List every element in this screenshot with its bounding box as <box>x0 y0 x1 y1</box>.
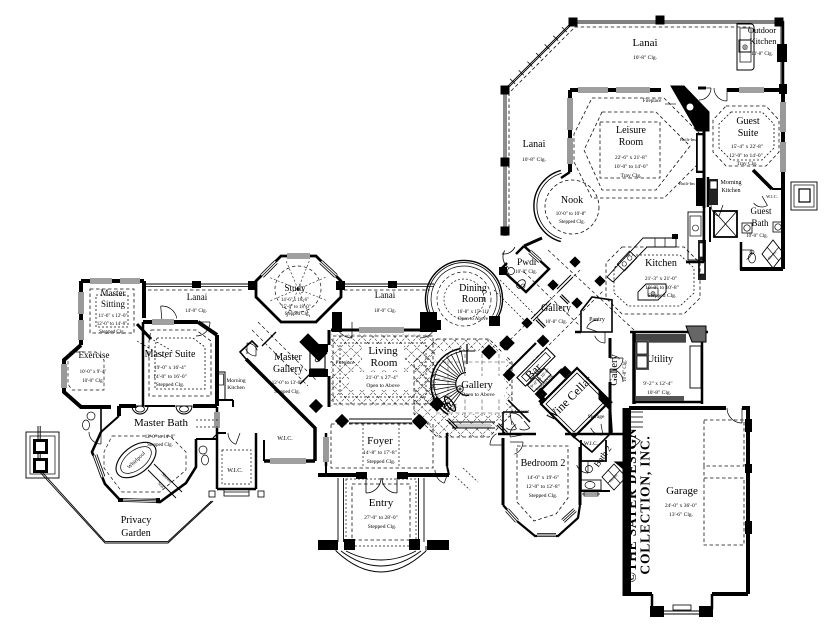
svg-text:Kitchen: Kitchen <box>227 385 245 391</box>
svg-text:Kitchen: Kitchen <box>722 188 741 194</box>
svg-text:Tray Clg.: Tray Clg. <box>621 173 643 179</box>
svg-text:10'-8" Clg.: 10'-8" Clg. <box>545 320 567 325</box>
svg-text:24'-0" x 36'-0": 24'-0" x 36'-0" <box>665 503 697 509</box>
svg-text:Outdoor: Outdoor <box>748 25 777 35</box>
svg-text:Room: Room <box>619 137 644 148</box>
svg-text:Lanai: Lanai <box>375 290 396 300</box>
svg-text:21'-0" x 27'-4": 21'-0" x 27'-4" <box>366 375 398 381</box>
svg-text:Stepped Clg.: Stepped Clg. <box>156 382 185 388</box>
svg-text:Garden: Garden <box>121 528 150 539</box>
svg-text:21'-3" x 21'-0": 21'-3" x 21'-0" <box>645 276 677 282</box>
svg-text:Kitchen: Kitchen <box>750 36 778 46</box>
svg-text:18'-0" Clg.: 18'-0" Clg. <box>374 309 396 314</box>
svg-text:27'-0" to 28'-0": 27'-0" to 28'-0" <box>364 515 398 521</box>
svg-text:Stepped Clg.: Stepped Clg. <box>99 330 125 335</box>
svg-text:Open to Above: Open to Above <box>458 317 489 322</box>
svg-text:Guest: Guest <box>751 206 772 216</box>
svg-text:14'-6" x 16'-6": 14'-6" x 16'-6" <box>281 298 309 303</box>
svg-text:Master Suite: Master Suite <box>145 349 196 360</box>
svg-text:10'-8" Clg.: 10'-8" Clg. <box>751 52 773 57</box>
svg-text:Suite: Suite <box>738 128 759 139</box>
svg-text:14'-0" to 16'-0": 14'-0" to 16'-0" <box>153 374 187 380</box>
svg-text:Kitchen: Kitchen <box>645 258 677 269</box>
svg-text:Master: Master <box>274 352 302 363</box>
svg-text:15'-0" to 18'-0": 15'-0" to 18'-0" <box>281 305 310 310</box>
svg-text:Fireplace: Fireplace <box>643 99 662 104</box>
svg-text:10'-8" Clg.: 10'-8" Clg. <box>633 55 658 61</box>
svg-text:Stepped Clg.: Stepped Clg. <box>368 524 397 530</box>
svg-text:Stepped Clg.: Stepped Clg. <box>274 390 300 395</box>
svg-text:10'-8" Clg.: 10'-8" Clg. <box>647 390 672 396</box>
svg-text:Fireplace: Fireplace <box>336 361 355 366</box>
svg-text:15'-4" x 22'-8": 15'-4" x 22'-8" <box>731 144 763 150</box>
svg-text:19'-0" x 16'-4": 19'-0" x 16'-4" <box>154 365 186 371</box>
svg-text:10'-8" Clg.: 10'-8" Clg. <box>522 157 547 163</box>
svg-text:14'-8" to 17'-8": 14'-8" to 17'-8" <box>363 450 397 456</box>
svg-text:14'-0" x 19'-6": 14'-0" x 19'-6" <box>527 475 559 481</box>
svg-text:COLLECTION, INC.: COLLECTION, INC. <box>638 435 653 574</box>
svg-text:Bath: Bath <box>752 218 769 228</box>
svg-text:Utility: Utility <box>647 354 673 365</box>
svg-text:11'-6" x 12'-0": 11'-6" x 12'-0" <box>98 314 127 319</box>
svg-text:Privacy: Privacy <box>121 515 152 526</box>
svg-text:12'-0" to 13'-0": 12'-0" to 13'-0" <box>272 381 303 386</box>
svg-text:12'-0" to 14'-0": 12'-0" to 14'-0" <box>729 153 763 159</box>
svg-text:Sitting: Sitting <box>101 299 126 309</box>
svg-text:Leisure: Leisure <box>616 125 647 136</box>
svg-text:Dining: Dining <box>459 283 487 294</box>
svg-text:◍: ◍ <box>742 43 748 51</box>
svg-text:Stepped Clg.: Stepped Clg. <box>559 220 585 225</box>
svg-text:10'-0" to 14'-0": 10'-0" to 14'-0" <box>614 164 648 170</box>
svg-text:W.I.C.: W.I.C. <box>766 194 778 199</box>
svg-text:Lanai: Lanai <box>187 292 208 302</box>
svg-text:Stepped Clg.: Stepped Clg. <box>529 493 558 499</box>
svg-text:Entry: Entry <box>369 497 394 509</box>
svg-text:12'-0" to 12'-8": 12'-0" to 12'-8" <box>526 484 560 490</box>
svg-text:Room: Room <box>462 294 487 305</box>
svg-text:Gallery: Gallery <box>461 380 493 391</box>
svg-text:Built-Ins: Built-Ins <box>679 181 695 186</box>
svg-text:Lanai: Lanai <box>523 139 546 150</box>
svg-text:10'-0" to 10'-8": 10'-0" to 10'-8" <box>556 212 587 217</box>
svg-text:14'-0" Clg.: 14'-0" Clg. <box>185 309 207 314</box>
svg-text:10'-0" Clg.: 10'-0" Clg. <box>746 234 768 239</box>
svg-text:Exercise: Exercise <box>79 350 110 360</box>
svg-text:12'-0" to 14'-0": 12'-0" to 14'-0" <box>97 322 128 327</box>
svg-text:W.I.C.: W.I.C. <box>277 436 293 442</box>
svg-text:Nook: Nook <box>561 195 583 206</box>
svg-text:Stepped Clg.: Stepped Clg. <box>285 312 310 317</box>
svg-text:Room: Room <box>371 357 398 369</box>
svg-text:22'-6" x 21'-8": 22'-6" x 21'-8" <box>615 155 647 161</box>
svg-text:Open to Above: Open to Above <box>366 383 400 389</box>
svg-text:Lanai: Lanai <box>632 37 657 49</box>
svg-text:Guest: Guest <box>736 116 760 127</box>
svg-text:9'-2" x 12'-4": 9'-2" x 12'-4" <box>643 381 672 387</box>
svg-text:Living: Living <box>368 345 398 357</box>
svg-text:Master: Master <box>101 288 126 298</box>
svg-text:Morning: Morning <box>721 180 742 186</box>
svg-text:Foyer: Foyer <box>367 435 393 447</box>
svg-text:W.I.C.: W.I.C. <box>584 441 599 447</box>
svg-text:Bedroom 2: Bedroom 2 <box>521 458 566 469</box>
svg-text:16'-8" x 15'-11": 16'-8" x 15'-11" <box>457 310 489 315</box>
svg-text:◍: ◍ <box>650 291 655 297</box>
svg-text:13'-6" Clg.: 13'-6" Clg. <box>669 512 694 518</box>
svg-text:Built-Ins: Built-Ins <box>680 137 696 142</box>
svg-text:Storage: Storage <box>588 414 605 420</box>
svg-text:Stepped Clg.: Stepped Clg. <box>367 459 396 465</box>
svg-text:Study: Study <box>284 283 306 293</box>
svg-text:10'-8" Clg.: 10'-8" Clg. <box>623 360 628 382</box>
svg-text:Morning: Morning <box>226 378 246 384</box>
svg-text:10'-0" x 9'-4": 10'-0" x 9'-4" <box>80 370 107 375</box>
svg-text:W.I.C.: W.I.C. <box>227 468 243 474</box>
svg-text:Master Bath: Master Bath <box>134 417 189 429</box>
svg-text:10'-0" Clg.: 10'-0" Clg. <box>82 379 104 384</box>
svg-text:Garage: Garage <box>666 485 698 497</box>
